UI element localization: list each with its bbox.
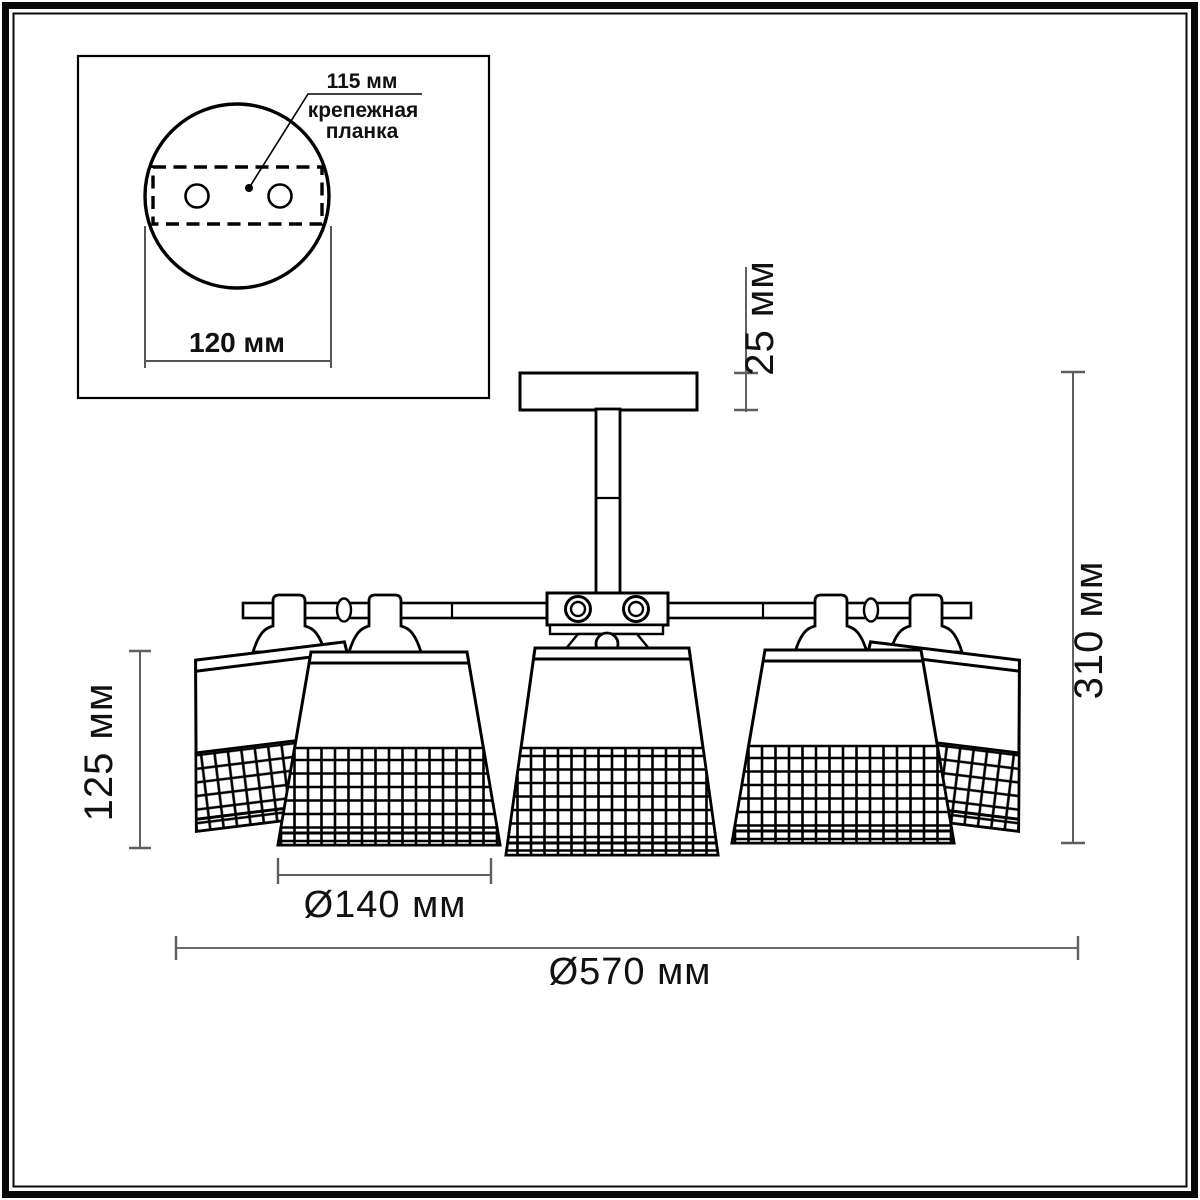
dimension-shade-height: 125 мм (77, 651, 151, 848)
total-height-label: 310 мм (1067, 561, 1111, 700)
shade-height-label: 125 мм (77, 683, 121, 822)
lampshade-4 (732, 650, 954, 843)
chandelier-fixture (176, 373, 1040, 855)
stem (596, 409, 620, 593)
bracket-label-line2: планка (326, 120, 399, 143)
lampshade-3 (506, 648, 718, 855)
hole-spacing-label: 115 мм (327, 70, 398, 93)
screw-hole-left (186, 185, 209, 208)
canopy-height-label: 25 мм (738, 260, 782, 376)
dimension-shade-diameter: Ø140 мм (278, 858, 491, 926)
chandelier-dimension-diagram: 115 мм крепежная планка 120 мм 25 мм 310… (0, 0, 1200, 1200)
arm-bead-left (337, 599, 351, 622)
shade-diameter-label: Ø140 мм (304, 884, 467, 926)
dimension-total-height: 310 мм (1061, 372, 1111, 843)
screw-hole-right (269, 185, 292, 208)
total-diameter-label: Ø570 мм (549, 951, 712, 993)
bracket-label-line1: крепежная (308, 99, 419, 122)
dimension-canopy-height: 25 мм (734, 260, 782, 412)
mount-plate-inset: 115 мм крепежная планка 120 мм (78, 56, 489, 398)
dimension-total-diameter: Ø570 мм (176, 936, 1078, 993)
technical-drawing-page: 115 мм крепежная планка 120 мм 25 мм 310… (0, 0, 1200, 1200)
ceiling-canopy (520, 373, 697, 410)
arm-bead-right (864, 599, 878, 622)
hub-ring-left-inner (571, 602, 585, 616)
lampshade-2 (278, 652, 500, 845)
hub-ring-right-inner (629, 602, 643, 616)
plate-width-label: 120 мм (189, 327, 285, 358)
